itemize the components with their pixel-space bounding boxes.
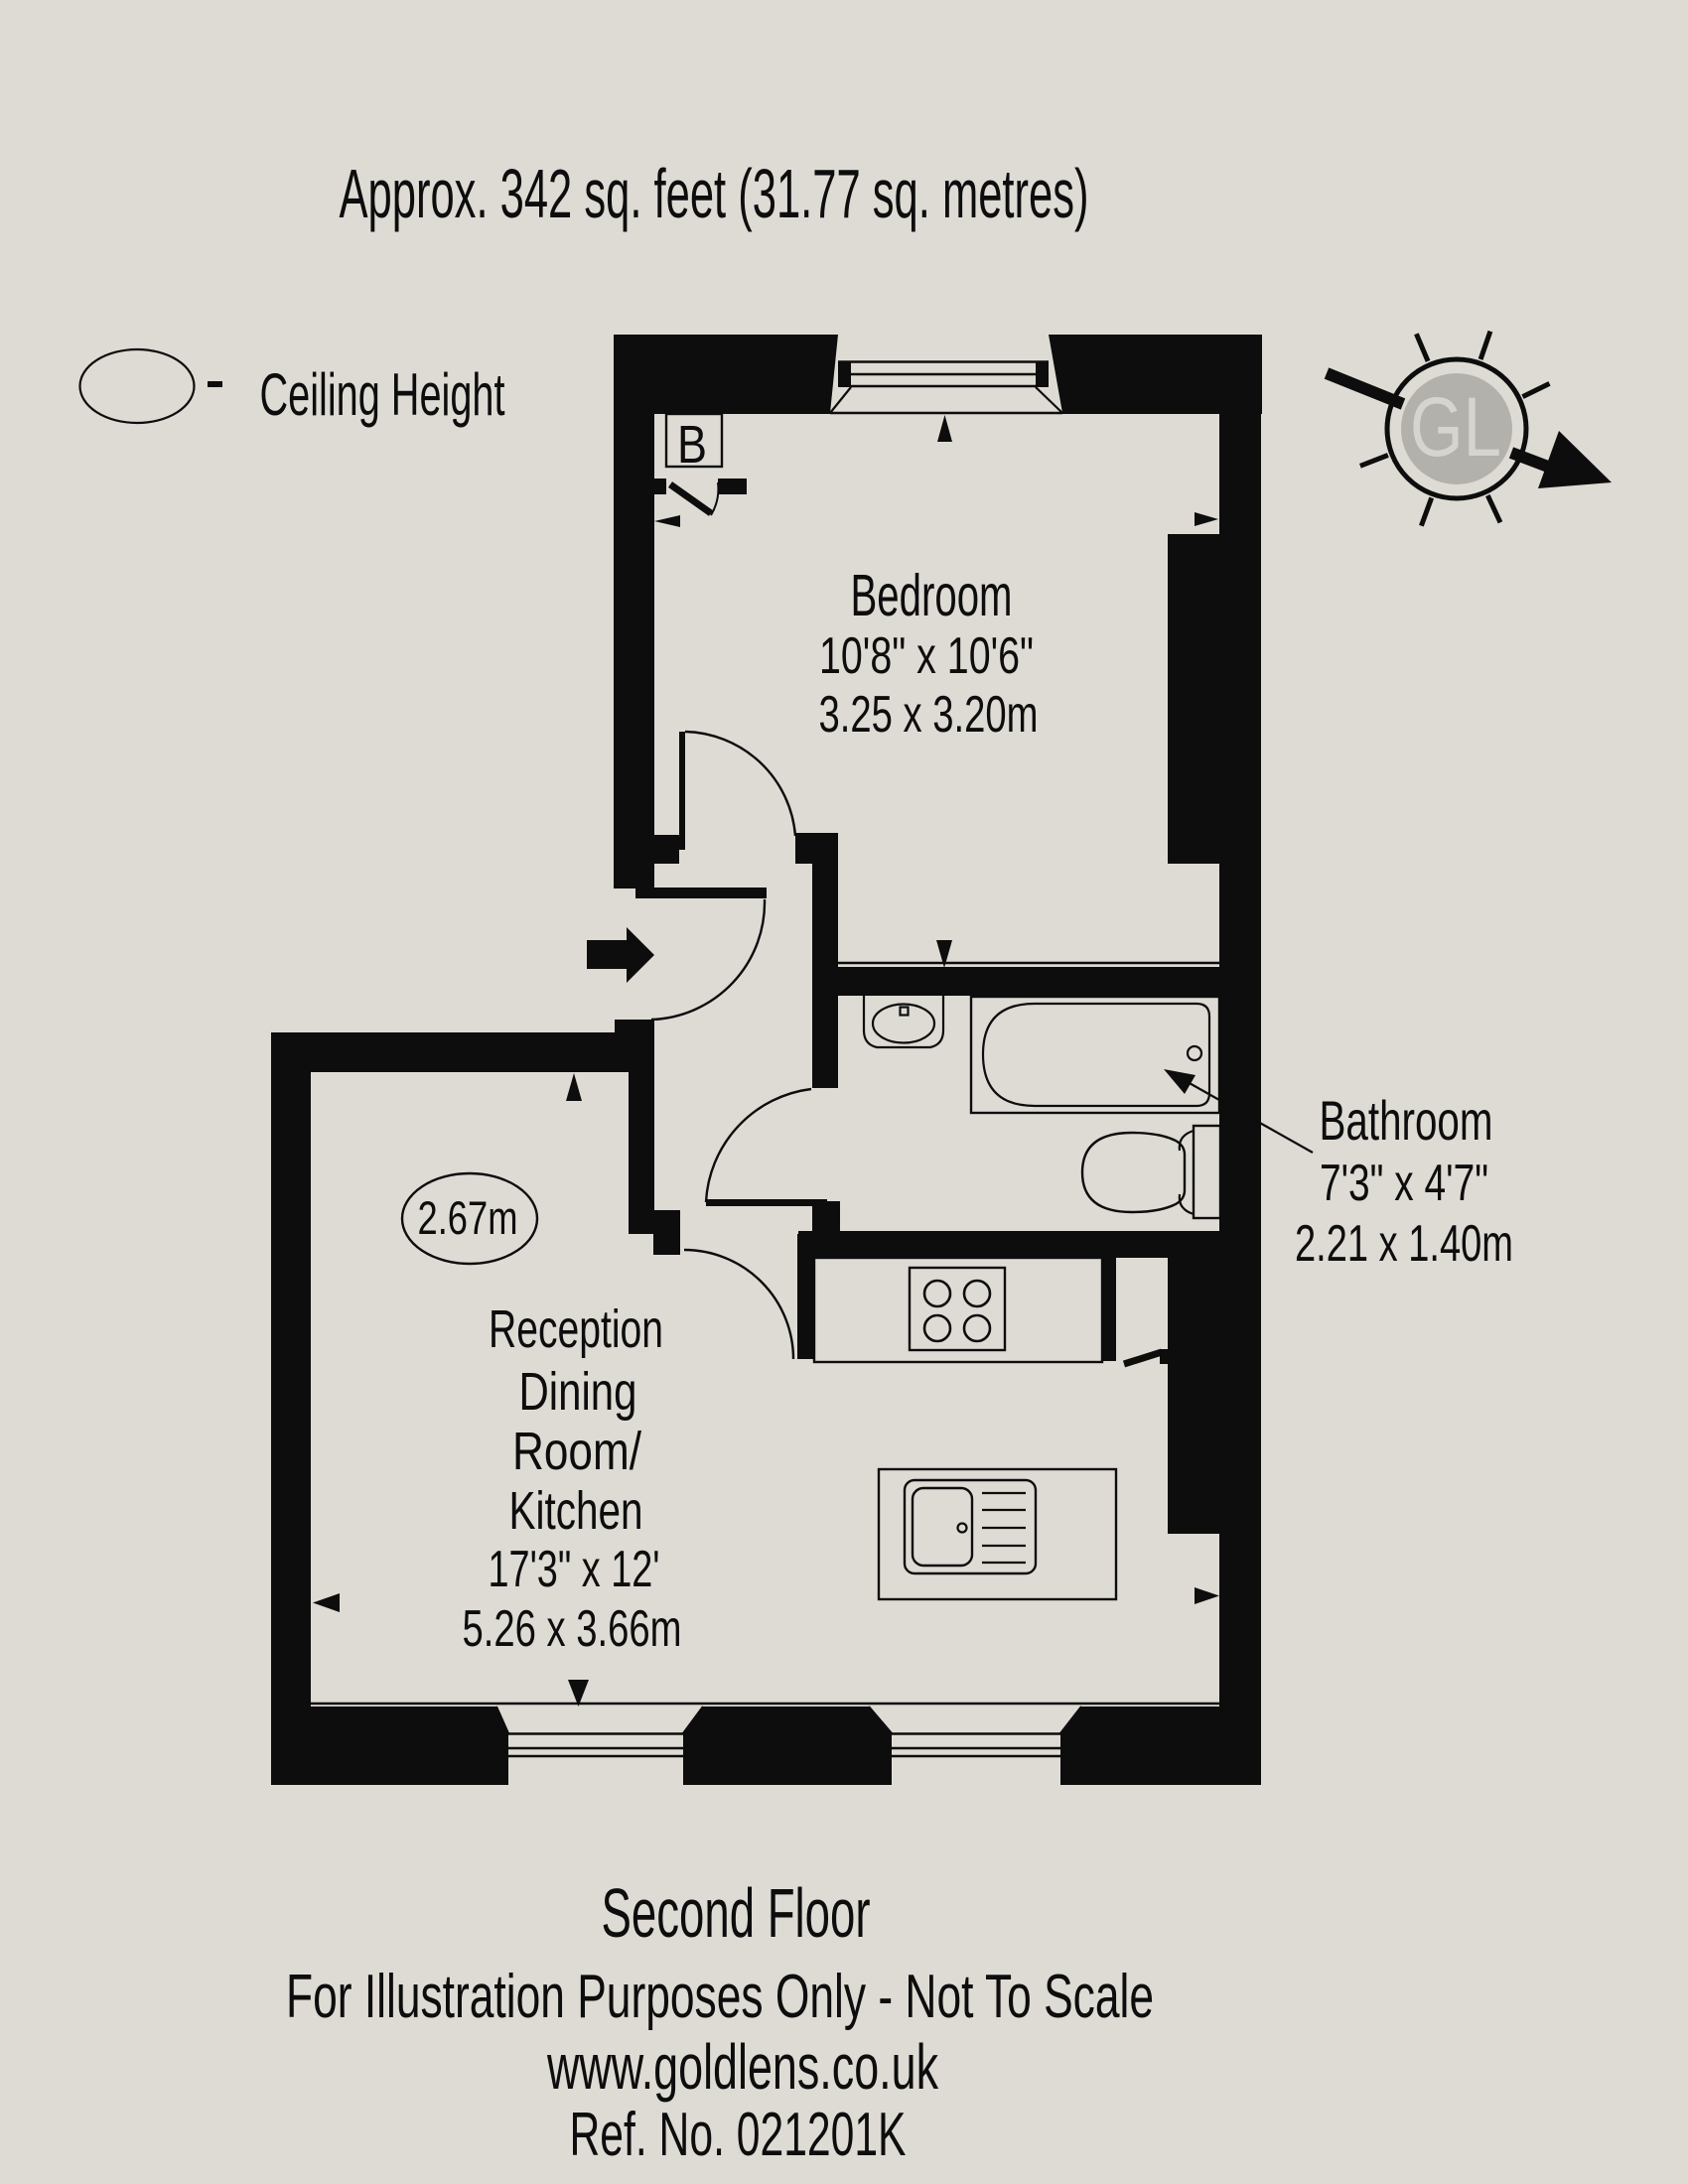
svg-text:7'3" x 4'7": 7'3" x 4'7" [1320,1155,1488,1212]
svg-text:Bedroom: Bedroom [851,563,1013,628]
svg-text:10'8" x 10'6": 10'8" x 10'6" [819,627,1034,685]
svg-text:Reception: Reception [489,1299,663,1359]
svg-text:Ref. No. 021201K: Ref. No. 021201K [570,2101,907,2169]
svg-text:Bathroom: Bathroom [1320,1089,1493,1152]
svg-text:2.21 x 1.40m: 2.21 x 1.40m [1295,1215,1513,1273]
svg-text:Room/: Room/ [512,1422,641,1481]
svg-text:Kitchen: Kitchen [509,1481,643,1541]
svg-text:17'3" x 12': 17'3" x 12' [489,1541,660,1598]
svg-text:5.26 x 3.66m: 5.26 x 3.66m [463,1600,682,1658]
svg-text:2.67m: 2.67m [418,1191,518,1244]
svg-text:B: B [677,415,707,475]
svg-text:GL: GL [1410,380,1501,474]
svg-text:3.25 x 3.20m: 3.25 x 3.20m [819,686,1039,744]
svg-text:www.goldlens.co.uk: www.goldlens.co.uk [546,2031,938,2103]
svg-text:Approx. 342 sq. feet (31.77 sq: Approx. 342 sq. feet (31.77 sq. metres) [340,155,1089,232]
svg-text:For Illustration Purposes Only: For Illustration Purposes Only - Not To … [286,1963,1154,2031]
svg-text:Ceiling Height: Ceiling Height [260,361,505,428]
svg-text:Dining: Dining [519,1362,637,1422]
svg-text:Second Floor: Second Floor [602,1874,871,1952]
